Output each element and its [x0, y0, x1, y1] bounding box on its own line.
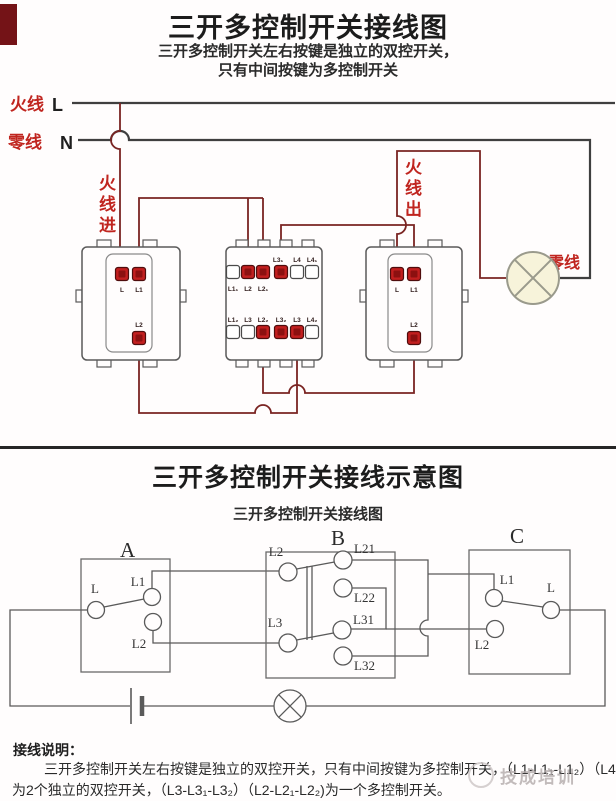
neutral-wire-label: 零线 — [7, 132, 42, 152]
sw1-label-l: L — [120, 287, 124, 294]
switch-c-label-l: L — [547, 580, 555, 595]
schematic-switch-a: L L1 L2 — [81, 559, 170, 672]
switch-module-2: L1₁ L2 L2₁ L3₁ L4 L4₁ L1₂ L3 L2₂ L3₂ L3 … — [226, 240, 322, 367]
sw2-top-terminal-4-core — [278, 269, 285, 276]
sw2-bottom-label-2: L3 — [244, 317, 252, 324]
switch-c-label-l1: L1 — [500, 572, 514, 587]
switch-c-terminal-l2 — [487, 621, 504, 638]
switch-b-terminal-l3 — [279, 634, 297, 652]
sw2-top-terminal-5 — [291, 266, 304, 279]
sw1-side-tab — [180, 290, 186, 302]
wire-left-supply — [10, 610, 130, 706]
sw2-bottom-terminal-2 — [242, 326, 255, 339]
top-subtitle-line2: 只有中间按键为多控制开关 — [0, 61, 616, 80]
top-wiring-diagram: 火线 L 零线 N 零线 — [0, 88, 616, 448]
switch-b-terminal-l31 — [333, 621, 351, 639]
sw2-top-terminal-1 — [227, 266, 240, 279]
sw3-side-tab — [360, 290, 366, 302]
note-heading: 接线说明： — [13, 740, 83, 760]
live-in-label: 火线进 — [97, 174, 114, 237]
top-subtitle-line1: 三开多控制开关左右按键是独立的双控开关， — [0, 42, 616, 61]
sw2-top-terminal-6 — [306, 266, 319, 279]
sw2-top-terminal-2-core — [245, 269, 252, 276]
sw2-top-label-6: L4₁ — [307, 257, 318, 264]
switch-b-label-l3: L3 — [268, 615, 282, 630]
sw1-label-l1: L1 — [135, 287, 143, 294]
live-wire-label: 火线 — [10, 94, 44, 114]
sw2-bottom-label-4: L3₂ — [276, 317, 287, 324]
switch-b-label-l31: L31 — [353, 612, 374, 627]
wire-b-l21-to-l32 — [352, 560, 428, 656]
sw2-bottom-terminal-6 — [306, 326, 319, 339]
switch-b-label-l22: L22 — [354, 590, 375, 605]
sw2-bottom-terminal-1 — [227, 326, 240, 339]
switch-c-terminal-l1 — [486, 590, 503, 607]
switch-c-lever — [502, 601, 543, 607]
sw2-top-label-5: L4 — [293, 257, 301, 264]
sw2-bottom-label-1: L1₂ — [228, 317, 239, 324]
wire-a-l1-to-b-l2 — [152, 571, 279, 589]
sw2-top-label-4: L3₁ — [273, 257, 284, 264]
switch-c-terminal-l — [543, 602, 560, 619]
sw3-terminal-l-core — [394, 271, 401, 278]
sw3-terminal-l1-core — [411, 271, 418, 278]
sw2-bottom-terminal-5-core — [294, 329, 301, 336]
sw3-label-l: L — [395, 287, 399, 294]
wire-traveler-to-c-l1 — [428, 574, 494, 590]
switch-c-label-l2: L2 — [475, 637, 489, 652]
switch-a-label-l: L — [91, 581, 99, 596]
schematic-switch-b: L2 L3 L21 L22 L31 L32 — [266, 541, 395, 678]
sw1-terminal-l1-core — [136, 271, 143, 278]
sw2-bottom-label-6: L4₂ — [307, 317, 318, 324]
live-out-label: 火线出 — [403, 158, 420, 221]
sw3-label-l2: L2 — [410, 322, 418, 329]
sw1-side-tab — [76, 290, 82, 302]
note-line2: 为2个独立的双控开关，（L3-L3₁-L3₂）（L2-L2₁-L2₂)为一个多控… — [12, 780, 451, 800]
neutral-wire-letter: N — [60, 133, 73, 153]
sw2-top-label-1: L1₁ — [228, 286, 239, 293]
switch-a-label-l1: L1 — [131, 574, 145, 589]
switch-b-label-l2: L2 — [269, 544, 283, 559]
bottom-subtitle: 三开多控制开关接线图 — [0, 503, 616, 524]
sw1-terminal-l2-core — [136, 335, 143, 342]
switch-a-lever — [104, 599, 144, 607]
switch-b-terminal-l22 — [334, 579, 352, 597]
switch-a-terminal-l1 — [144, 589, 161, 606]
sw2-bottom-terminal-4-core — [278, 329, 285, 336]
sw2-top-label-2: L2 — [244, 286, 252, 293]
schematic-switch-c: L1 L L2 — [469, 550, 570, 674]
switch-b-terminal-l32 — [334, 647, 352, 665]
wiring-diagram-page: 三开多控制开关接线图 三开多控制开关左右按键是独立的双控开关， 只有中间按键为多… — [0, 0, 616, 801]
switch-b-lever-bottom — [297, 633, 334, 640]
sw1-body — [82, 247, 180, 360]
switch-a-label-l2: L2 — [132, 636, 146, 651]
sw3-terminal-l2-core — [411, 335, 418, 342]
sw1-terminal-l-core — [119, 271, 126, 278]
wire-a-l2-to-b-l3 — [153, 631, 279, 644]
switch-a-terminal-l — [88, 602, 105, 619]
bottom-title: 三开多控制开关接线示意图 — [0, 458, 616, 494]
sw2-top-terminal-3-core — [260, 269, 267, 276]
live-wire-letter: L — [52, 95, 63, 115]
section-divider — [0, 446, 616, 449]
switch-b-lever-top — [297, 562, 335, 569]
gang-b-letter: B — [331, 528, 345, 550]
switch-b-label-l32: L32 — [354, 658, 375, 673]
switch-a-terminal-l2 — [145, 614, 162, 631]
gang-c-letter: C — [510, 528, 524, 548]
sw2-top-label-3: L2₁ — [258, 286, 269, 293]
top-title: 三开多控制开关接线图 — [0, 6, 616, 45]
switch-module-3: L L1 L2 — [360, 240, 468, 367]
top-subtitle: 三开多控制开关左右按键是独立的双控开关， 只有中间按键为多控制开关 — [0, 42, 616, 80]
note-line1: 三开多控制开关左右按键是独立的双控开关，只有中间按键为多控制开关，（L1-L1₁… — [44, 759, 616, 779]
sw2-bottom-label-3: L2₂ — [258, 317, 269, 324]
switch-b-label-l21: L21 — [354, 541, 375, 556]
switch-b-terminal-l2 — [279, 563, 297, 581]
bottom-schematic-diagram: A B C L L1 L2 — [0, 528, 616, 728]
sw3-label-l1: L1 — [410, 287, 418, 294]
switch-b-terminal-l21 — [334, 551, 352, 569]
sw2-bottom-label-5: L3 — [293, 317, 301, 324]
sw2-bottom-terminal-3-core — [260, 329, 267, 336]
switch-module-1: L L1 L2 — [76, 240, 186, 367]
sw3-side-tab — [462, 290, 468, 302]
sw1-label-l2: L2 — [135, 322, 143, 329]
